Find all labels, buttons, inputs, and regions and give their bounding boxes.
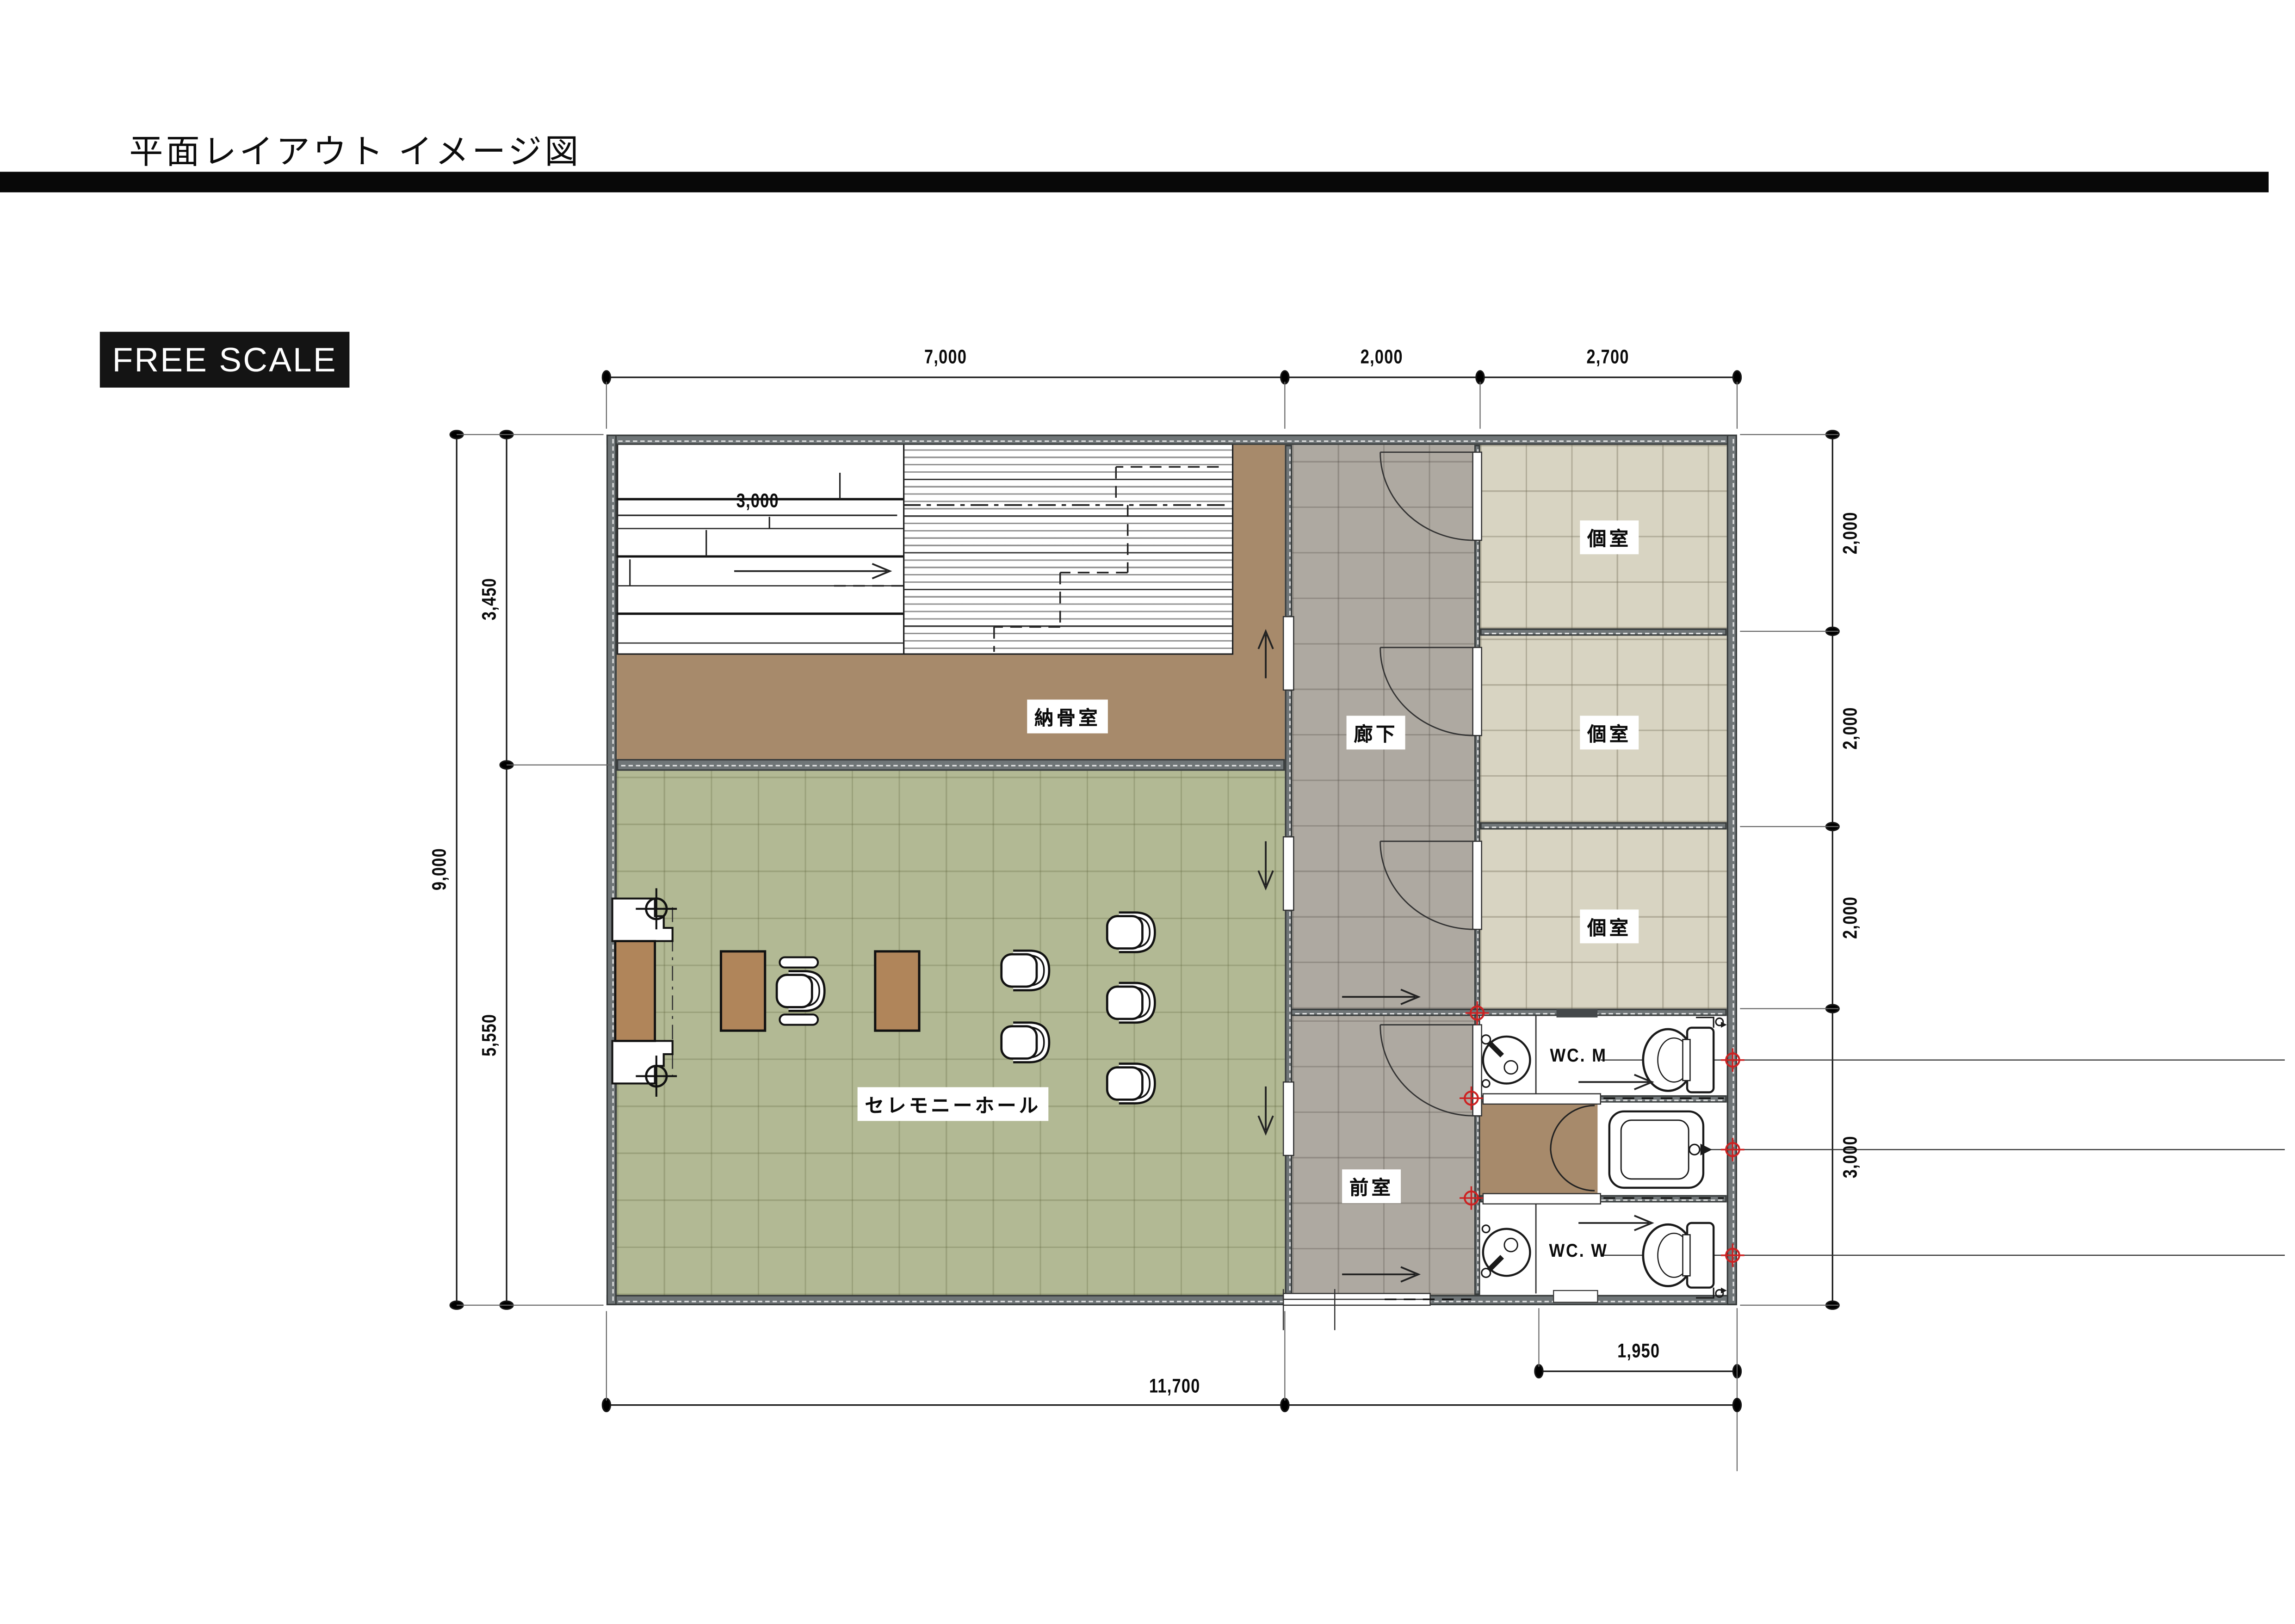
dim-bottom-11700: 11,700 — [1149, 1375, 1200, 1397]
room-label-ossuary: 納骨室 — [1027, 699, 1108, 733]
altar — [612, 888, 677, 1097]
flow-arrow-ossuary — [734, 564, 890, 579]
dim-bottom-1950: 1,950 — [1617, 1340, 1660, 1362]
utility-sink-icon — [1609, 1111, 1712, 1188]
dim-top-7000: 7,000 — [924, 346, 967, 368]
room-label-private-1: 個室 — [1580, 520, 1639, 554]
dim-top-2700: 2,700 — [1587, 346, 1629, 368]
room-label-anteroom: 前室 — [1342, 1169, 1401, 1203]
toilet-icon — [1643, 1018, 1727, 1093]
room-label-corridor: 廊下 — [1347, 716, 1405, 749]
room-label-wc-men: WC. M — [1550, 1045, 1607, 1066]
dim-left-5550: 5,550 — [478, 1014, 500, 1056]
dim-right-2000-b: 2,000 — [1839, 707, 1862, 749]
room-label-ceremony-hall: セレモニーホール — [858, 1087, 1049, 1121]
room-label-private-3: 個室 — [1580, 909, 1639, 943]
audience-chairs — [1002, 913, 1155, 1104]
dim-left-9000: 9,000 — [428, 848, 450, 890]
dim-left-3450: 3,450 — [478, 578, 500, 620]
room-label-wc-women: WC. W — [1549, 1241, 1608, 1261]
room-label-private-2: 個室 — [1580, 716, 1639, 749]
dim-right-3000: 3,000 — [1839, 1136, 1862, 1178]
dim-right-2000-c: 2,000 — [1839, 896, 1862, 939]
toilet-icon — [1643, 1223, 1727, 1298]
ossuary-shelf-lines — [617, 467, 1231, 652]
basin-icon — [1482, 1225, 1530, 1278]
dim-right-2000-a: 2,000 — [1839, 512, 1862, 554]
floor-plan-page: 平面レイアウト イメージ図 FREE SCALE — [0, 0, 2295, 1623]
dim-shelf-3000: 3,000 — [736, 490, 779, 512]
officiant-chair — [777, 957, 824, 1025]
dim-top-2000: 2,000 — [1361, 346, 1403, 368]
basin-icon — [1482, 1035, 1530, 1087]
plan-linework — [0, 0, 2295, 1624]
